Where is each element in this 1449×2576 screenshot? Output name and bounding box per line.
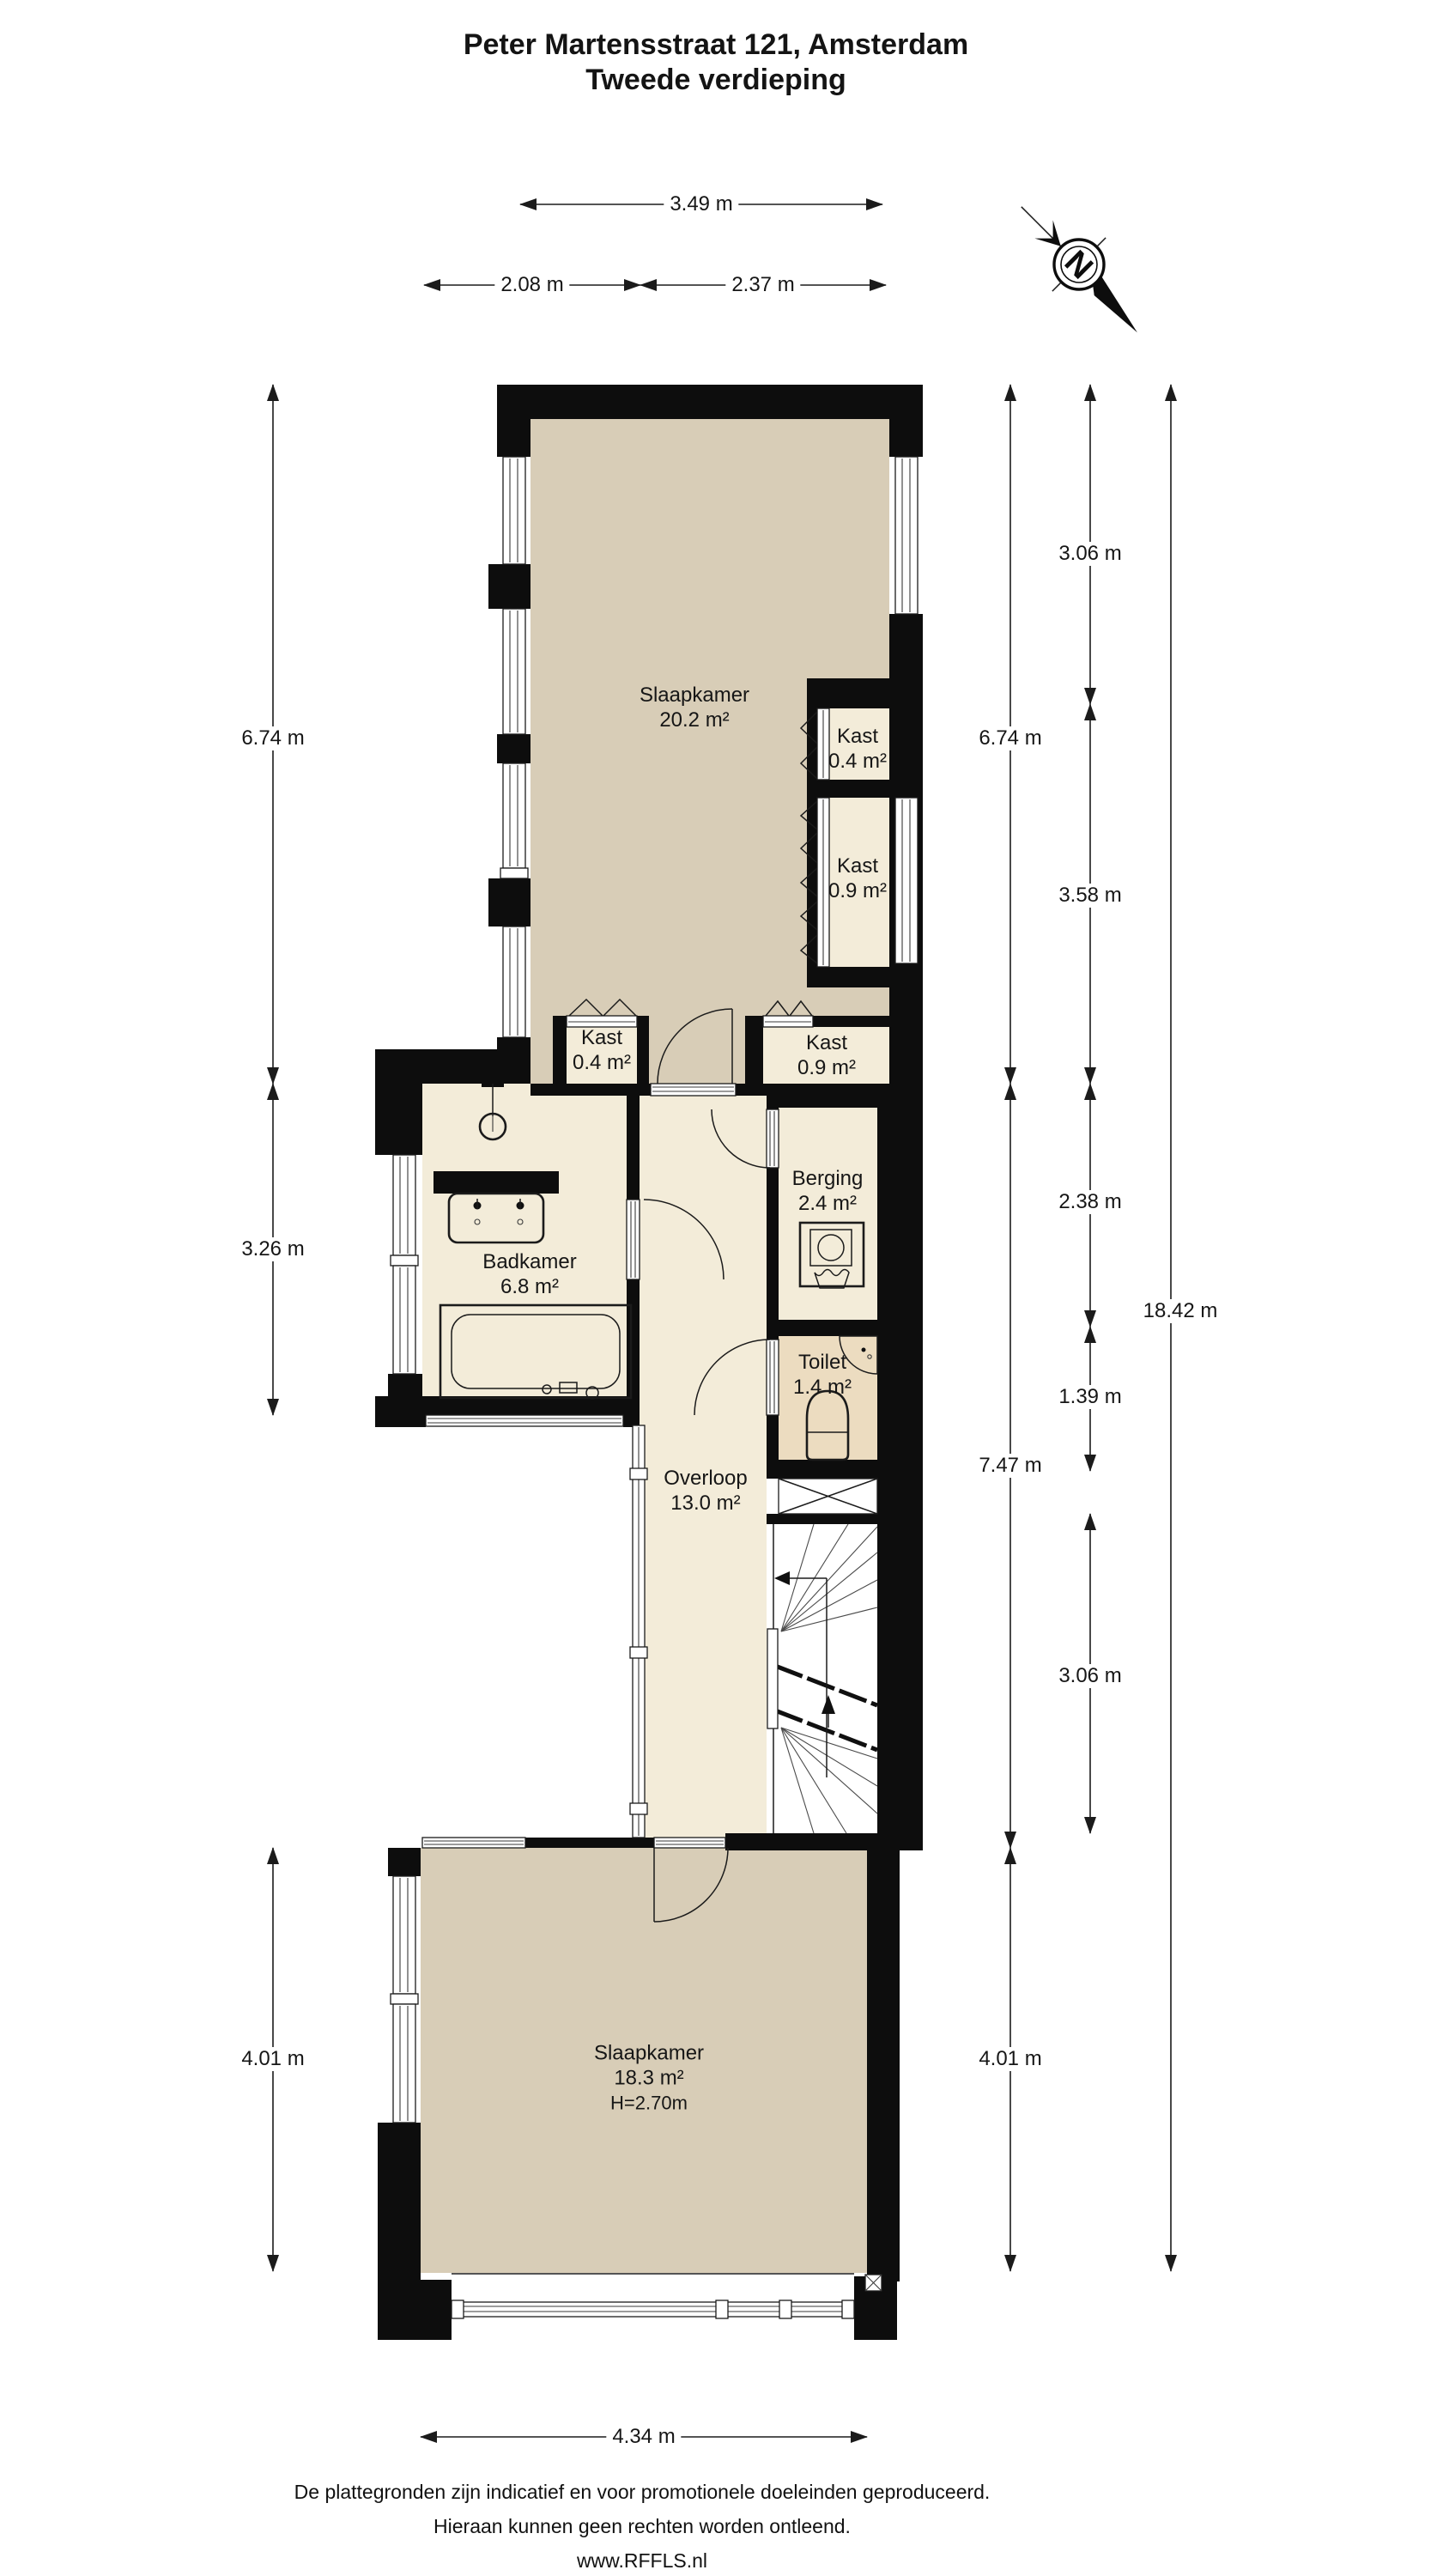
title-floor: Tweede verdieping [464, 63, 968, 98]
dim-right-mid-3: 2.38 m [1052, 1190, 1127, 1214]
room-label-berging: Berging2.4 m² [792, 1166, 864, 1216]
compass-rose: N [995, 180, 1169, 355]
floorplan-canvas: N [0, 0, 1449, 2576]
room-label-kast-09-rechts: Kast0.9 m² [828, 854, 887, 903]
title-address: Peter Martensstraat 121, Amsterdam [464, 27, 968, 63]
dim-top-total: 3.49 m [664, 192, 738, 216]
dim-bottom: 4.34 m [606, 2425, 681, 2449]
disclaimer: De plattegronden zijn indicatief en voor… [294, 2475, 991, 2576]
dim-right-mid-4: 1.39 m [1052, 1385, 1127, 1409]
dim-right-inner-lower: 4.01 m [973, 2047, 1047, 2071]
disclaimer-line1: De plattegronden zijn indicatief en voor… [294, 2475, 991, 2509]
room-label-kast-09-onder: Kast0.9 m² [797, 1030, 856, 1080]
dim-right-inner-upper: 6.74 m [973, 726, 1047, 750]
disclaimer-line2: Hieraan kunnen geen rechten worden ontle… [294, 2509, 991, 2543]
dim-top-right: 2.37 m [725, 273, 800, 297]
room-label-badkamer: Badkamer6.8 m² [482, 1249, 576, 1299]
fill-overloop [640, 1084, 767, 1838]
room-label-slaapkamer-boven: Slaapkamer20.2 m² [640, 683, 749, 732]
floorplan-page: N Peter Martensstraat 121, Amsterdam Twe… [0, 0, 1449, 2576]
disclaimer-url: www.RFFLS.nl [294, 2543, 991, 2576]
dim-right-inner-middle: 7.47 m [973, 1454, 1047, 1478]
dim-left-upper: 6.74 m [235, 726, 310, 750]
fill-badkamer [422, 1084, 627, 1413]
dim-top-left: 2.08 m [494, 273, 569, 297]
room-label-slaapkamer-onder: Slaapkamer18.3 m² H=2.70m [594, 2041, 704, 2116]
room-label-overloop: Overloop13.0 m² [664, 1466, 747, 1516]
dim-right-total: 18.42 m [1137, 1299, 1224, 1323]
room-label-toilet: Toilet1.4 m² [793, 1350, 852, 1400]
room-label-kast-04-boven: Kast0.4 m² [828, 724, 887, 774]
stair-direction-arrows [774, 1571, 835, 1777]
dim-right-mid-2: 3.58 m [1052, 884, 1127, 908]
dim-right-mid-5: 3.06 m [1052, 1664, 1127, 1688]
flue-marker-icon [865, 2275, 882, 2291]
staircase [767, 1479, 877, 1833]
dim-left-middle: 3.26 m [235, 1237, 310, 1261]
dim-right-mid-1: 3.06 m [1052, 542, 1127, 566]
room-label-kast-04-onder: Kast0.4 m² [573, 1025, 631, 1075]
page-title: Peter Martensstraat 121, Amsterdam Tweed… [464, 27, 968, 98]
dim-left-lower: 4.01 m [235, 2047, 310, 2071]
